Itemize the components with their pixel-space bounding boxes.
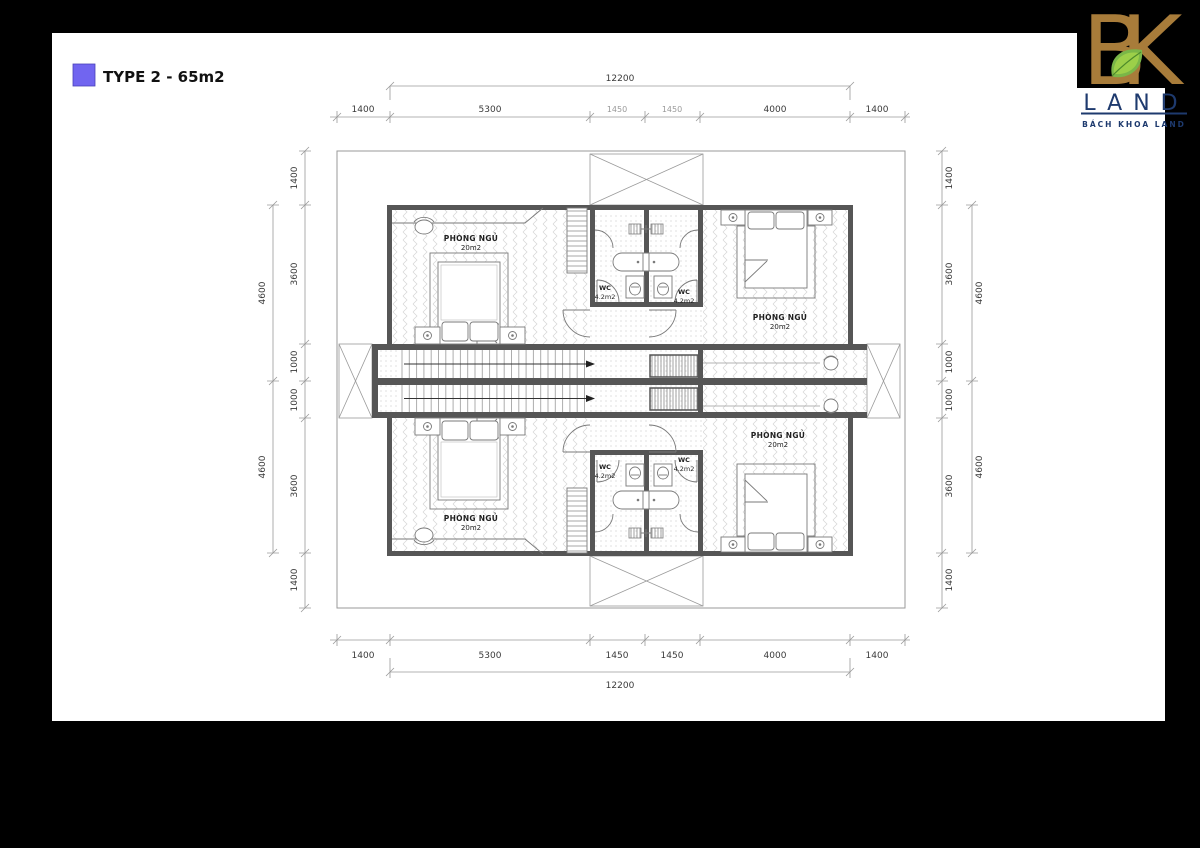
pillow [442,322,468,341]
dim-top-seg-0: 1400 [352,105,375,115]
wc-top-right-label: WC [678,288,690,296]
dim-bottom-total: 12200 [606,681,635,691]
bedroom-top-right-label: PHÒNG NGỦ [753,312,807,322]
logo-underline [1081,113,1187,115]
pillow [748,533,774,550]
wardrobe-bottom [567,488,587,553]
dim-bottom-seg-5: 1400 [866,651,889,661]
dim-right-seg-4: 3600 [945,474,955,497]
dim-bottom-seg-1: 5300 [479,651,502,661]
staircase-lower-flight [397,385,595,412]
dim-right-seg-2: 1000 [945,350,955,373]
dim-left-outer-0: 4600 [258,281,268,304]
legend-swatch [73,64,95,86]
dim-bottom-seg-3: 1450 [661,651,684,661]
dim-left-seg-0: 1400 [290,166,300,189]
dim-right-seg-5: 1400 [945,568,955,591]
dimension-chain-bottom: 1400 5300 1450 1450 4000 1400 12200 [330,634,910,691]
dim-left-seg-2: 1000 [290,350,300,373]
dim-left-seg-3: 1000 [290,388,300,411]
bedroom-bottom-right-label: PHÒNG NGỦ [751,430,805,440]
dim-top-seg-2: 1450 [607,105,627,114]
dim-right-outer-0: 4600 [975,281,985,304]
dim-top-seg-5: 1400 [866,105,889,115]
dim-left-seg-1: 3600 [290,262,300,285]
dim-left-outer-1: 4600 [258,455,268,478]
legend: TYPE 2 - 65m2 [73,64,225,86]
shower-head [629,224,641,234]
pillow [470,322,498,341]
dim-right-seg-0: 1400 [945,166,955,189]
pillow [776,212,804,229]
wc-bottom-right-area: 4.2m2 [674,465,695,473]
floor-plan-sheet: PHÒNG NGỦ 20m2 PHÒNG NGỦ 20m2 PHÒNG NGỦ … [0,0,1200,848]
dim-top-seg-1: 5300 [479,105,502,115]
legend-label: TYPE 2 - 65m2 [103,68,225,86]
dim-left-seg-4: 3600 [290,474,300,497]
bedroom-bottom-right-area: 20m2 [768,441,788,449]
wc-bottom-left-label: WC [599,463,611,471]
bathtub [613,491,679,509]
staircase-upper-flight [397,350,595,378]
wc-bottom-right-label: WC [678,456,690,464]
pillow [776,533,804,550]
wc-bottom-left-area: 4.2m2 [595,472,616,480]
wc-top-left-area: 4.2m2 [595,293,616,301]
bk-land-logo: B K LAND BÁCH KHOA LAND [1077,0,1200,129]
pillow [470,421,498,440]
dim-left-seg-5: 1400 [290,568,300,591]
dim-bottom-seg-4: 4000 [764,651,787,661]
dim-top-total: 12200 [606,74,635,84]
bedroom-bottom-left-label: PHÒNG NGỦ [444,513,498,523]
dimension-chain-right: 1400 3600 1000 1000 3600 1400 4600 4600 [936,147,985,612]
pillow [442,421,468,440]
wc-top-right-area: 4.2m2 [674,297,695,305]
dim-bottom-seg-2: 1450 [606,651,629,661]
shower-head [651,224,663,234]
dim-top-seg-3: 1450 [662,105,682,114]
dim-right-seg-1: 3600 [945,262,955,285]
logo-subtitle: BÁCH KHOA LAND [1082,120,1186,129]
wc-top-left-label: WC [599,284,611,292]
dimension-chain-left: 1400 3600 1000 1000 3600 1400 4600 4600 [258,147,311,612]
plan-drawing: PHÒNG NGỦ 20m2 PHÒNG NGỦ 20m2 PHÒNG NGỦ … [0,0,1200,848]
shower-head [629,528,641,538]
pillow [748,212,774,229]
dim-top-seg-4: 4000 [764,105,787,115]
bedroom-top-left-area: 20m2 [461,244,481,252]
bedroom-top-left-label: PHÒNG NGỦ [444,233,498,243]
dimension-chain-top: 12200 1400 5300 1450 1450 4000 1400 [330,74,910,123]
bedroom-bottom-left-area: 20m2 [461,524,481,532]
dim-right-seg-3: 1000 [945,388,955,411]
logo-brand: LAND [1083,91,1188,116]
wardrobe-top [567,208,587,273]
bedroom-top-right-area: 20m2 [770,323,790,331]
shower-head [651,528,663,538]
dim-bottom-seg-0: 1400 [352,651,375,661]
bathtub [613,253,679,271]
dim-right-outer-1: 4600 [975,455,985,478]
